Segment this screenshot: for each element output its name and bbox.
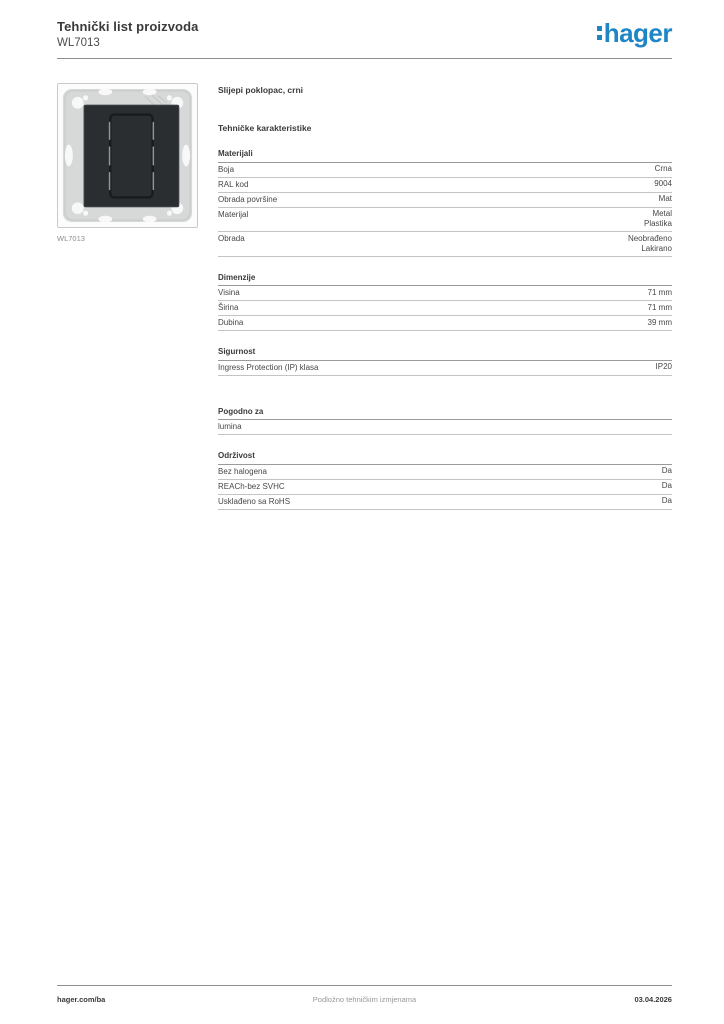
spec-row: REACh-bez SVHCDa	[218, 480, 672, 495]
page-footer: hager.com/ba Podložno tehničkim izmjenam…	[57, 985, 672, 1004]
spec-section: Pogodno zalumina	[218, 407, 672, 436]
hager-logo: hager	[597, 20, 672, 46]
spec-label: Obrada	[218, 234, 245, 245]
spec-label: Visina	[218, 288, 240, 299]
product-column: WL7013	[57, 83, 218, 510]
logo-colon-icon	[597, 26, 602, 40]
spec-value: MetalPlastika	[644, 209, 672, 229]
spec-section-title: Dimenzije	[218, 273, 672, 287]
spec-row: Usklađeno sa RoHSDa	[218, 495, 672, 510]
spec-row: Ingress Protection (IP) klasaIP20	[218, 361, 672, 376]
page-header: Tehnički list proizvoda WL7013 hager	[57, 0, 672, 49]
spec-row: MaterijalMetalPlastika	[218, 208, 672, 233]
spec-section-title: Pogodno za	[218, 407, 672, 421]
spec-label: Širina	[218, 303, 238, 314]
spec-section: MaterijaliBojaCrnaRAL kod9004Obrada povr…	[218, 149, 672, 257]
spec-section: OdrživostBez halogenaDaREACh-bez SVHCDaU…	[218, 451, 672, 510]
spec-label: Dubina	[218, 318, 243, 329]
spec-value: IP20	[656, 362, 672, 372]
spec-row: Širina71 mm	[218, 301, 672, 316]
spec-label: Ingress Protection (IP) klasa	[218, 362, 318, 373]
spec-row: Bez halogenaDa	[218, 465, 672, 480]
spec-section-title: Materijali	[218, 149, 672, 163]
footer-website: hager.com/ba	[57, 995, 238, 1004]
spec-section-title: Održivost	[218, 451, 672, 465]
spec-sections: MaterijaliBojaCrnaRAL kod9004Obrada povr…	[218, 149, 672, 510]
spec-row: lumina	[218, 420, 672, 435]
spec-label: Boja	[218, 164, 234, 175]
spec-section-title: Sigurnost	[218, 347, 672, 361]
footer-divider	[57, 985, 672, 986]
spec-row: Dubina39 mm	[218, 316, 672, 331]
datasheet-page: Tehnički list proizvoda WL7013 hager	[0, 0, 724, 1024]
spec-section: DimenzijeVisina71 mmŠirina71 mmDubina39 …	[218, 273, 672, 332]
spec-row: Obrada površineMat	[218, 193, 672, 208]
spec-value: 9004	[654, 179, 672, 189]
spec-label: Obrada površine	[218, 194, 277, 205]
spec-row: Visina71 mm	[218, 286, 672, 301]
doc-title: Tehnički list proizvoda	[57, 19, 198, 34]
spec-value: 39 mm	[648, 318, 672, 328]
spec-label: Bez halogena	[218, 466, 267, 477]
spec-value: Da	[662, 496, 672, 506]
header-divider	[57, 58, 672, 59]
product-name: Slijepi poklopac, crni	[218, 85, 672, 95]
spec-label: RAL kod	[218, 179, 248, 190]
spec-value: 71 mm	[648, 288, 672, 298]
spec-row: ObradaNeobrađenoLakirano	[218, 232, 672, 257]
spec-row: BojaCrna	[218, 163, 672, 178]
specs-column: Slijepi poklopac, crni Tehničke karakter…	[218, 83, 672, 510]
product-code: WL7013	[57, 37, 198, 49]
header-text-block: Tehnički list proizvoda WL7013	[57, 19, 198, 49]
blind-cover-illustration	[58, 84, 197, 227]
spec-label: REACh-bez SVHC	[218, 481, 285, 492]
logo-wordmark: hager	[604, 20, 672, 46]
spec-label: lumina	[218, 422, 242, 433]
main-content: WL7013 Slijepi poklopac, crni Tehničke k…	[57, 83, 672, 510]
footer-disclaimer: Podložno tehničkim izmjenama	[238, 995, 491, 1004]
product-image	[57, 83, 198, 228]
spec-value: Crna	[655, 164, 672, 174]
footer-row: hager.com/ba Podložno tehničkim izmjenam…	[57, 995, 672, 1004]
spec-value: Mat	[659, 194, 672, 204]
specs-title: Tehničke karakteristike	[218, 123, 672, 133]
spec-value: Da	[662, 466, 672, 476]
product-image-caption: WL7013	[57, 234, 218, 243]
spec-section: SigurnostIngress Protection (IP) klasaIP…	[218, 347, 672, 376]
spec-label: Usklađeno sa RoHS	[218, 496, 290, 507]
spec-value: 71 mm	[648, 303, 672, 313]
spec-value: NeobrađenoLakirano	[628, 234, 672, 254]
spec-value: Da	[662, 481, 672, 491]
footer-date: 03.04.2026	[491, 995, 672, 1004]
spec-label: Materijal	[218, 209, 248, 220]
spec-row: RAL kod9004	[218, 178, 672, 193]
